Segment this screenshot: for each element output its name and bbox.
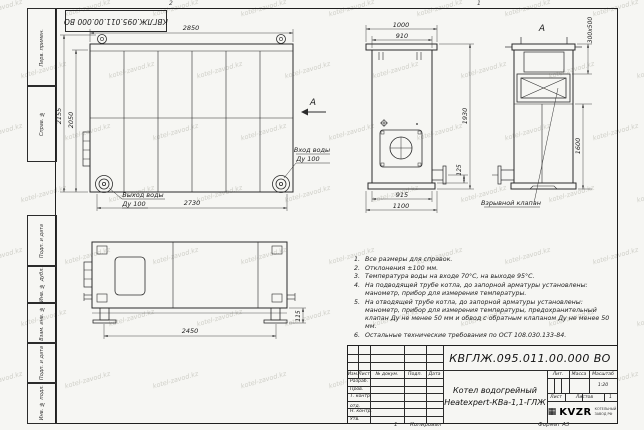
note-number: 4. — [352, 282, 365, 298]
copied-by-label: Копировал — [410, 422, 441, 428]
tb-sheet-label: Лист — [547, 393, 565, 401]
note-number: 3. — [352, 273, 365, 281]
kvzr-logo-icon: ▦ — [548, 408, 557, 417]
tb-doc-number: КВГЛЖ.095.011.00.000 ВО — [443, 346, 617, 370]
tb-product-name-line2: Heatexpert-КВа-1,1-ГЛЖ — [444, 397, 546, 409]
frame-cell-sprav-no: Справ. № — [27, 85, 57, 162]
tb-row-prov: Пров. — [348, 386, 372, 394]
tb-col-doc: № докум. — [370, 370, 404, 378]
note-text: Температура воды на входе 70°С, на выход… — [365, 273, 614, 281]
note-item: 2.Отклонения ±100 мм. — [352, 265, 614, 273]
kvzr-logo: ▦ KVZR КОТЕЛЬНЫЙ ЗАВОД РФ — [547, 401, 617, 423]
note-item: 5.На отводящей трубе котла, до запорной … — [352, 299, 614, 332]
kvzr-logo-text: KVZR — [559, 407, 591, 418]
note-text: Отклонения ±100 мм. — [365, 265, 614, 273]
drawing-sheet: kotel-zavod.kzkotel-zavod.kzkotel-zavod.… — [0, 0, 644, 430]
tb-col-izm: Изм. — [348, 370, 358, 378]
frame-cell-podp-data-2: Подп. и дата — [27, 342, 57, 384]
tb-lit-label: Лит. — [547, 370, 569, 378]
flipped-docnumber-stamp: КВГЛЖ.095.011.00.000 ВО — [65, 10, 167, 32]
tb-product-name-line1: Котел водогрейный — [453, 385, 537, 397]
tb-sheets-label: Листов — [565, 393, 604, 401]
zone-digit-bottom: 1 — [394, 422, 398, 428]
title-block: Изм. Лист № докум. Подп. Дата Разраб. Пр… — [347, 345, 618, 424]
tb-col-data: Дата — [426, 370, 443, 378]
tb-row-tkontr: Т. контр. — [348, 393, 372, 401]
frame-cell-inv-podl: Инв. № подл. — [27, 382, 57, 424]
note-item: 6.Остальные технические требования по ОС… — [352, 332, 614, 340]
note-number: 6. — [352, 332, 365, 340]
note-text: На подводящей трубе котла, до запорной а… — [365, 282, 614, 298]
tb-mass-label: Масса — [569, 370, 589, 378]
tb-row-razrab: Разраб. — [348, 378, 372, 386]
zone-digit-top-right: 1 — [477, 0, 481, 7]
note-number: 2. — [352, 265, 365, 273]
note-number: 5. — [352, 299, 365, 332]
note-number: 1. — [352, 256, 365, 264]
note-text: Все размеры для справок. — [365, 256, 614, 264]
tb-row-nkontr: Н. контр. — [348, 408, 372, 416]
flipped-docnumber-text: КВГЛЖ.095.011.00.000 ВО — [64, 17, 168, 26]
tb-col-list: Лист — [358, 370, 370, 378]
tb-row-utv: Утв. — [348, 416, 372, 424]
frame-cell-inv-dubl: Инв. № дубл. — [27, 265, 57, 304]
technical-notes: 1.Все размеры для справок. 2.Отклонения … — [352, 256, 614, 341]
tb-sheets-value: 1 — [604, 393, 617, 401]
zone-digit-top-left: 2 — [169, 0, 173, 7]
frame-cell-perv-primen: Перв. примен. — [27, 8, 57, 87]
kvzr-sub-line2: ЗАВОД РФ — [595, 412, 617, 417]
tb-scale-value: 1:20 — [589, 378, 617, 393]
note-item: 3.Температура воды на входе 70°С, на вых… — [352, 273, 614, 281]
tb-product-name: Котел водогрейный Heatexpert-КВа-1,1-ГЛЖ — [443, 370, 547, 423]
kvzr-logo-subtitle: КОТЕЛЬНЫЙ ЗАВОД РФ — [595, 407, 617, 416]
note-item: 4.На подводящей трубе котла, до запорной… — [352, 282, 614, 298]
tb-row-nachotd: Нач. отд. — [348, 401, 372, 409]
tb-col-podp: Подп. — [404, 370, 426, 378]
frame-cell-vzam-inv: Взам. инв. № — [27, 302, 57, 344]
note-text: На отводящей трубе котла, до запорной ар… — [365, 299, 614, 332]
frame-cell-podp-data-1: Подп. и дата — [27, 215, 57, 267]
note-text: Остальные технические требования по ОСТ … — [365, 332, 614, 340]
note-item: 1.Все размеры для справок. — [352, 256, 614, 264]
tb-scale-label: Масштаб — [589, 370, 617, 378]
format-label: Формат А3 — [538, 422, 569, 428]
